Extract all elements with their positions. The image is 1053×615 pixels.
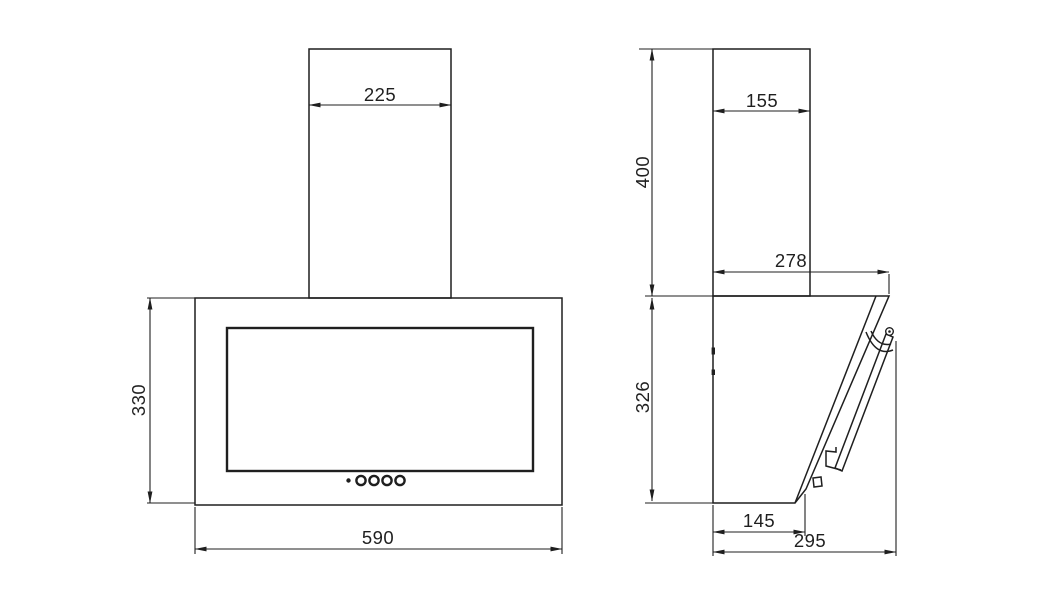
dim-label: 326 [632,381,653,413]
side-glass-inner-edge [795,296,876,503]
dim-front-body-height: 330 [128,298,195,503]
indicator-dot [346,478,350,482]
control-button [356,476,365,485]
control-button [382,476,391,485]
dim-label: 155 [746,90,778,111]
side-view: 155 400 326 278 145 [632,49,896,556]
dim-label: 295 [794,530,826,551]
control-panel [346,476,404,485]
control-button [395,476,404,485]
dim-label: 278 [775,250,807,271]
dim-front-body-width: 590 [195,507,562,554]
mounting-tick [712,370,715,376]
dim-label: 225 [364,84,396,105]
dim-side-duct-height: 400 [632,49,713,296]
front-view: 225 330 590 [128,49,562,554]
dim-label: 145 [743,510,775,531]
hinge-pivot-dot [888,330,891,333]
dim-label: 330 [128,384,149,416]
body-clip [813,477,822,487]
dim-front-duct-width: 225 [309,84,451,105]
dimension-drawing: 225 330 590 [0,0,1053,615]
front-glass-panel [227,328,533,471]
dim-label: 590 [362,527,394,548]
control-button [369,476,378,485]
dim-side-top-depth: 278 [713,250,889,294]
dim-side-duct-depth: 155 [713,90,810,111]
mounting-tick [712,348,715,355]
side-hood-body [713,296,889,503]
dim-side-body-height: 326 [632,296,713,503]
dim-label: 400 [632,156,653,188]
